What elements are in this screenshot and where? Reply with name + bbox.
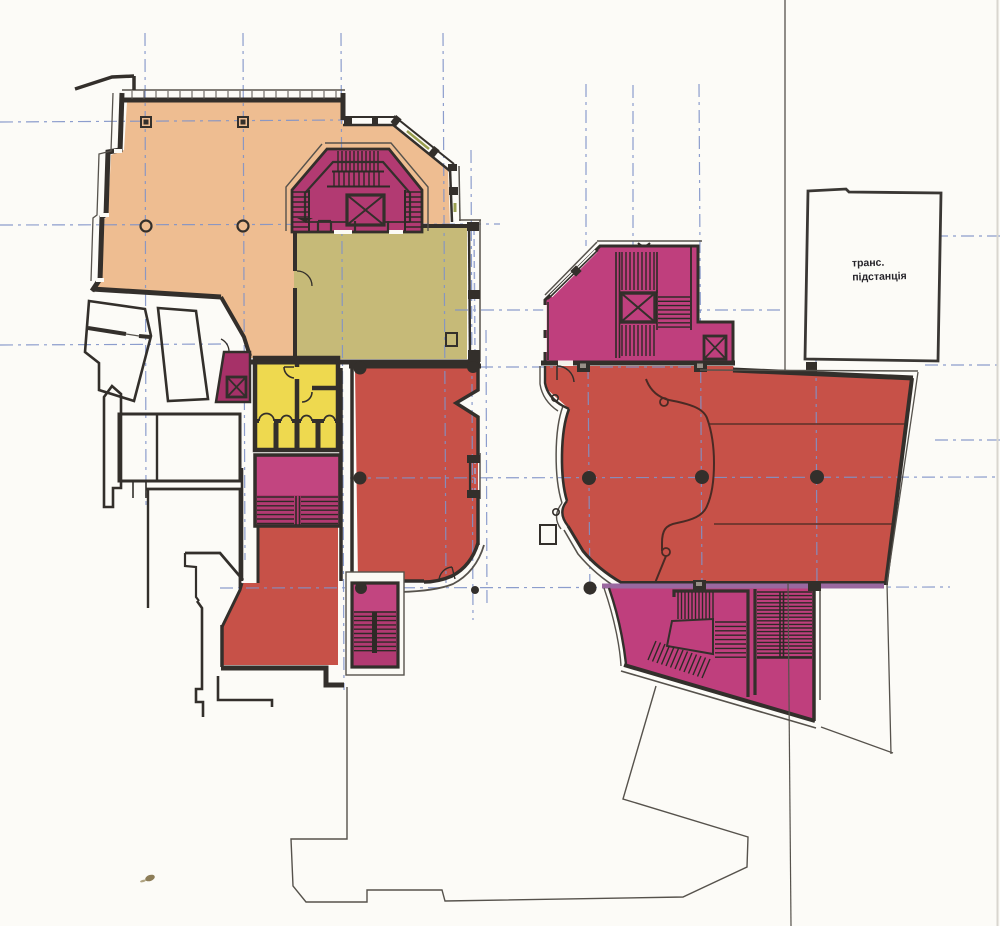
svg-text:підстанція: підстанція — [852, 270, 907, 283]
svg-text:транс.: транс. — [852, 257, 885, 270]
